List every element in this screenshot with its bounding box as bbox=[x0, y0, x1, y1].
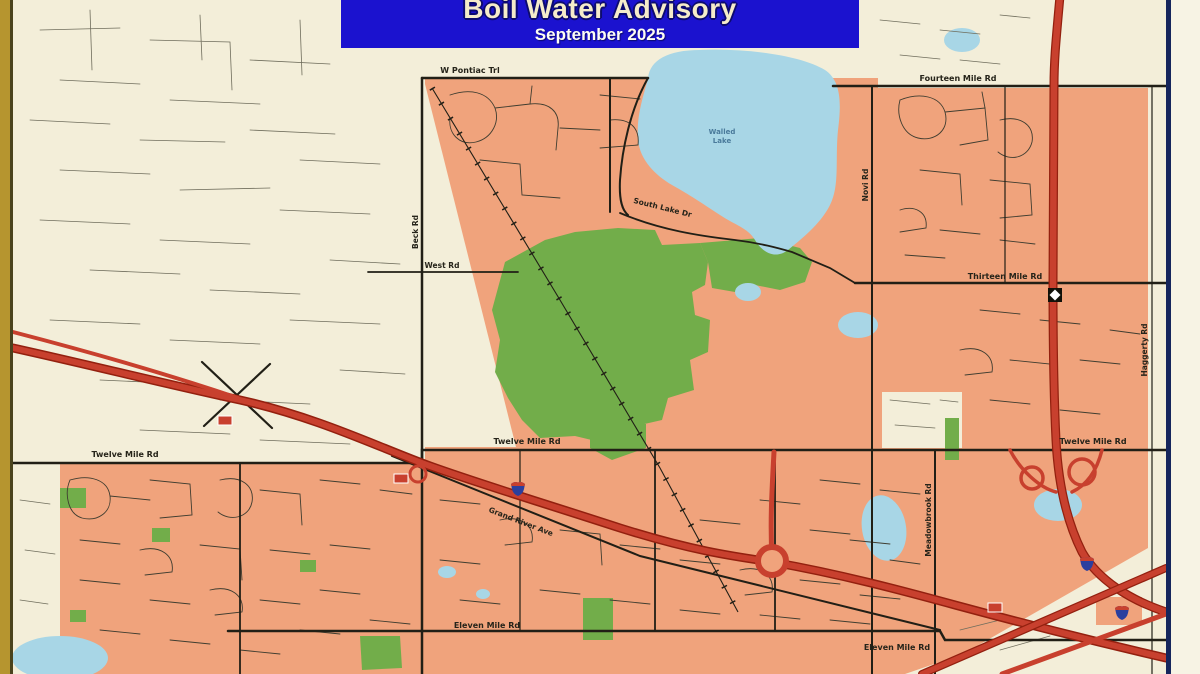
label-pontiac-trl: W Pontiac Trl bbox=[440, 66, 500, 75]
label-west-rd: West Rd bbox=[425, 261, 460, 270]
border-navy-line bbox=[1166, 0, 1171, 674]
label-eleven-mile-center: Eleven Mile Rd bbox=[454, 621, 521, 630]
business-route-marker-icon bbox=[988, 603, 1002, 612]
advisory-subtitle: September 2025 bbox=[341, 25, 859, 45]
label-beck-rd: Beck Rd bbox=[411, 215, 420, 249]
label-fourteen-mile: Fourteen Mile Rd bbox=[920, 74, 997, 83]
label-twelve-mile-right: Twelve Mile Rd bbox=[1059, 437, 1126, 446]
advisory-title: Boil Water Advisory bbox=[341, 0, 859, 25]
business-route-marker-icon bbox=[218, 416, 232, 425]
label-walled-lake-1: Walled bbox=[709, 128, 736, 136]
label-novi-rd: Novi Rd bbox=[861, 169, 870, 202]
border-gold-strip bbox=[0, 0, 10, 674]
label-walled-lake-2: Lake bbox=[713, 137, 732, 145]
label-thirteen-mile: Thirteen Mile Rd bbox=[968, 272, 1043, 281]
label-haggerty-rd: Haggerty Rd bbox=[1140, 323, 1149, 376]
label-twelve-mile-left: Twelve Mile Rd bbox=[91, 450, 158, 459]
i96-interchange bbox=[758, 547, 786, 575]
boil-water-advisory-map: W Pontiac Trl Fourteen Mile Rd Thirteen … bbox=[0, 0, 1200, 674]
title-banner: Boil Water Advisory September 2025 bbox=[341, 0, 859, 48]
m5-route-marker-icon bbox=[1048, 288, 1062, 302]
map-canvas: W Pontiac Trl Fourteen Mile Rd Thirteen … bbox=[0, 0, 1200, 674]
label-eleven-mile-right: Eleven Mile Rd bbox=[864, 643, 931, 652]
label-twelve-mile-center: Twelve Mile Rd bbox=[493, 437, 560, 446]
label-meadowbrook-rd: Meadowbrook Rd bbox=[924, 483, 933, 556]
business-route-marker-icon bbox=[394, 474, 408, 483]
